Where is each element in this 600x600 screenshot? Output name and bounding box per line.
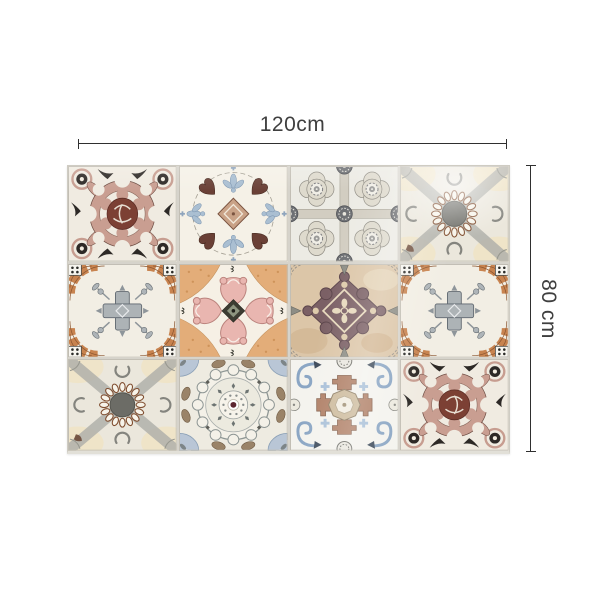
tile-r2c3 [290,264,399,358]
height-dimension-label: 80 cm [536,267,560,351]
tile-mural [67,165,510,454]
tile-r2c2 [179,264,288,358]
tile-r3c3 [290,359,399,451]
tile-r2c4 [400,264,509,358]
tile-r1c4 [400,166,509,262]
tile-r3c4 [400,359,509,451]
product-dimension-figure: 120cm 80 cm [0,0,600,600]
tile-r1c2 [179,166,288,262]
tile-r1c3 [290,166,399,262]
width-dimension-line [78,143,507,144]
tile-r3c2 [179,359,288,451]
height-dimension-line [530,165,531,452]
tile-r3c1 [68,359,177,451]
tile-r1c1 [68,166,177,262]
tile-r2c1 [68,264,177,358]
width-dimension-label: 120cm [78,113,507,137]
